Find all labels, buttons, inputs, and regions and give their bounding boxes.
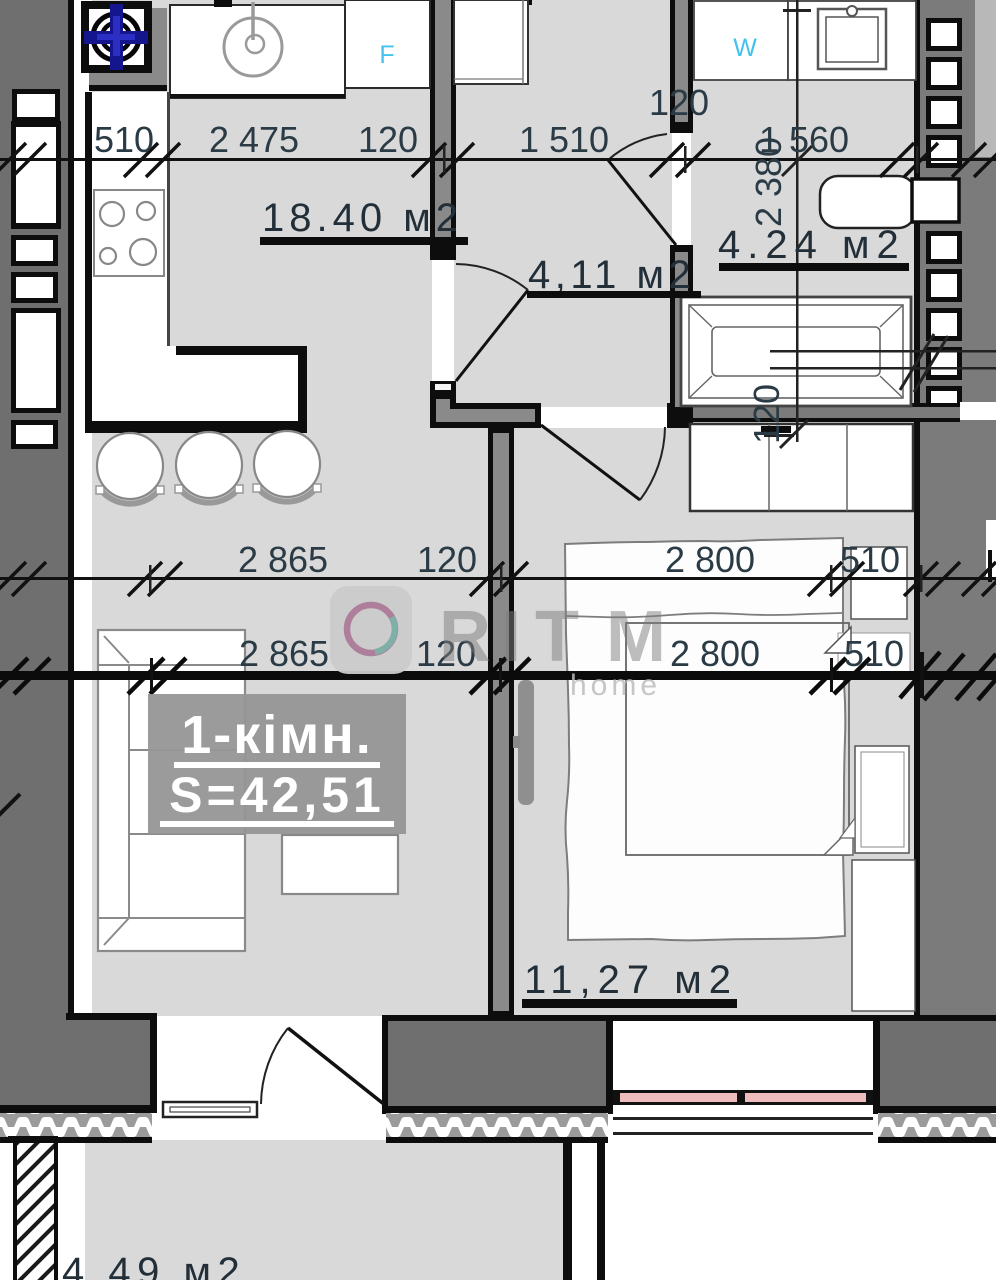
svg-text:120: 120	[649, 82, 709, 123]
svg-text:18.40 м2: 18.40 м2	[262, 196, 463, 240]
svg-text:4,11 м2: 4,11 м2	[528, 253, 695, 297]
svg-text:4.24 м2: 4.24 м2	[718, 223, 906, 267]
svg-text:2 380: 2 380	[748, 137, 789, 227]
svg-text:510: 510	[844, 633, 904, 674]
svg-text:2 800: 2 800	[670, 633, 760, 674]
svg-text:R: R	[439, 597, 491, 677]
svg-text:510: 510	[840, 539, 900, 580]
svg-text:11,27 м2: 11,27 м2	[524, 958, 738, 1002]
svg-text:1-кімн.: 1-кімн.	[181, 705, 373, 765]
svg-text:F: F	[379, 41, 394, 69]
svg-text:510: 510	[94, 119, 154, 160]
svg-text:M: M	[606, 597, 666, 677]
svg-text:120: 120	[746, 384, 787, 444]
svg-text:120: 120	[417, 539, 477, 580]
svg-text:1 510: 1 510	[519, 119, 609, 160]
svg-text:2 475: 2 475	[209, 119, 299, 160]
svg-text:W: W	[733, 34, 757, 62]
svg-text:home: home	[570, 669, 661, 702]
svg-text:4.49 м2: 4.49 м2	[62, 1250, 246, 1280]
svg-text:S=42,51: S=42,51	[169, 767, 385, 823]
svg-text:2 865: 2 865	[238, 539, 328, 580]
svg-text:120: 120	[358, 119, 418, 160]
svg-text:T: T	[535, 597, 579, 677]
svg-text:2 800: 2 800	[665, 539, 755, 580]
svg-text:2 865: 2 865	[239, 633, 329, 674]
svg-text:I: I	[501, 597, 521, 677]
